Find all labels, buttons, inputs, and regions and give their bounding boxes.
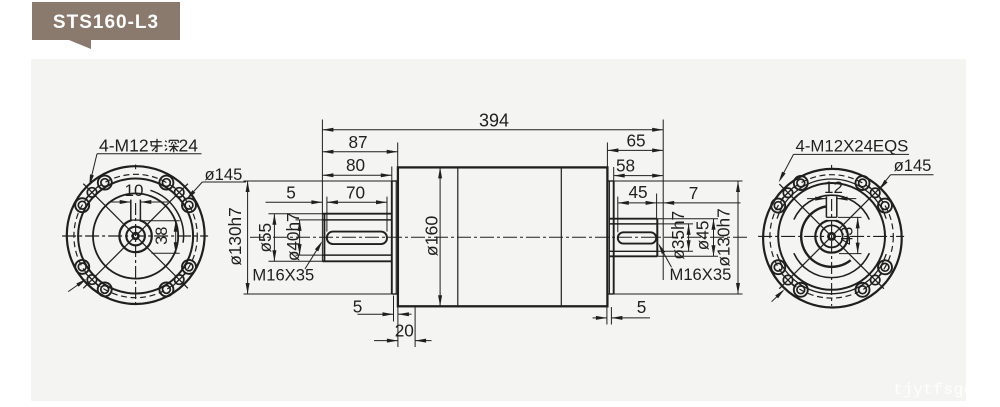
svg-text:ø40h7: ø40h7 xyxy=(283,212,303,261)
svg-text:ø55: ø55 xyxy=(255,223,275,253)
svg-text:58: 58 xyxy=(616,155,635,175)
svg-text:M16X35: M16X35 xyxy=(670,265,732,284)
svg-text:24: 24 xyxy=(179,136,199,156)
svg-text:70: 70 xyxy=(346,183,365,203)
svg-text:ø130h7: ø130h7 xyxy=(225,207,245,265)
svg-text:ø145: ø145 xyxy=(205,165,243,184)
svg-text:394: 394 xyxy=(479,111,509,131)
svg-text:7: 7 xyxy=(689,183,699,203)
svg-text:ø45: ø45 xyxy=(693,221,713,251)
svg-text:4-M12X24EQS: 4-M12X24EQS xyxy=(796,136,909,155)
svg-text:5: 5 xyxy=(637,297,647,317)
svg-text:80: 80 xyxy=(346,155,365,175)
svg-text:43: 43 xyxy=(838,227,856,245)
svg-text:45: 45 xyxy=(628,182,647,202)
svg-text:38: 38 xyxy=(153,227,171,245)
svg-text:ø130h7: ø130h7 xyxy=(714,208,734,266)
svg-text:ø145: ø145 xyxy=(894,156,932,175)
svg-text:12: 12 xyxy=(824,178,843,197)
svg-text:5: 5 xyxy=(286,183,296,203)
svg-text:20: 20 xyxy=(395,321,414,341)
svg-text:10: 10 xyxy=(125,181,144,200)
svg-text:4-M12: 4-M12 xyxy=(99,136,149,156)
svg-text:65: 65 xyxy=(626,131,645,151)
svg-text:5: 5 xyxy=(353,296,363,316)
svg-text:87: 87 xyxy=(348,132,367,152)
svg-text:ø160: ø160 xyxy=(421,216,441,257)
